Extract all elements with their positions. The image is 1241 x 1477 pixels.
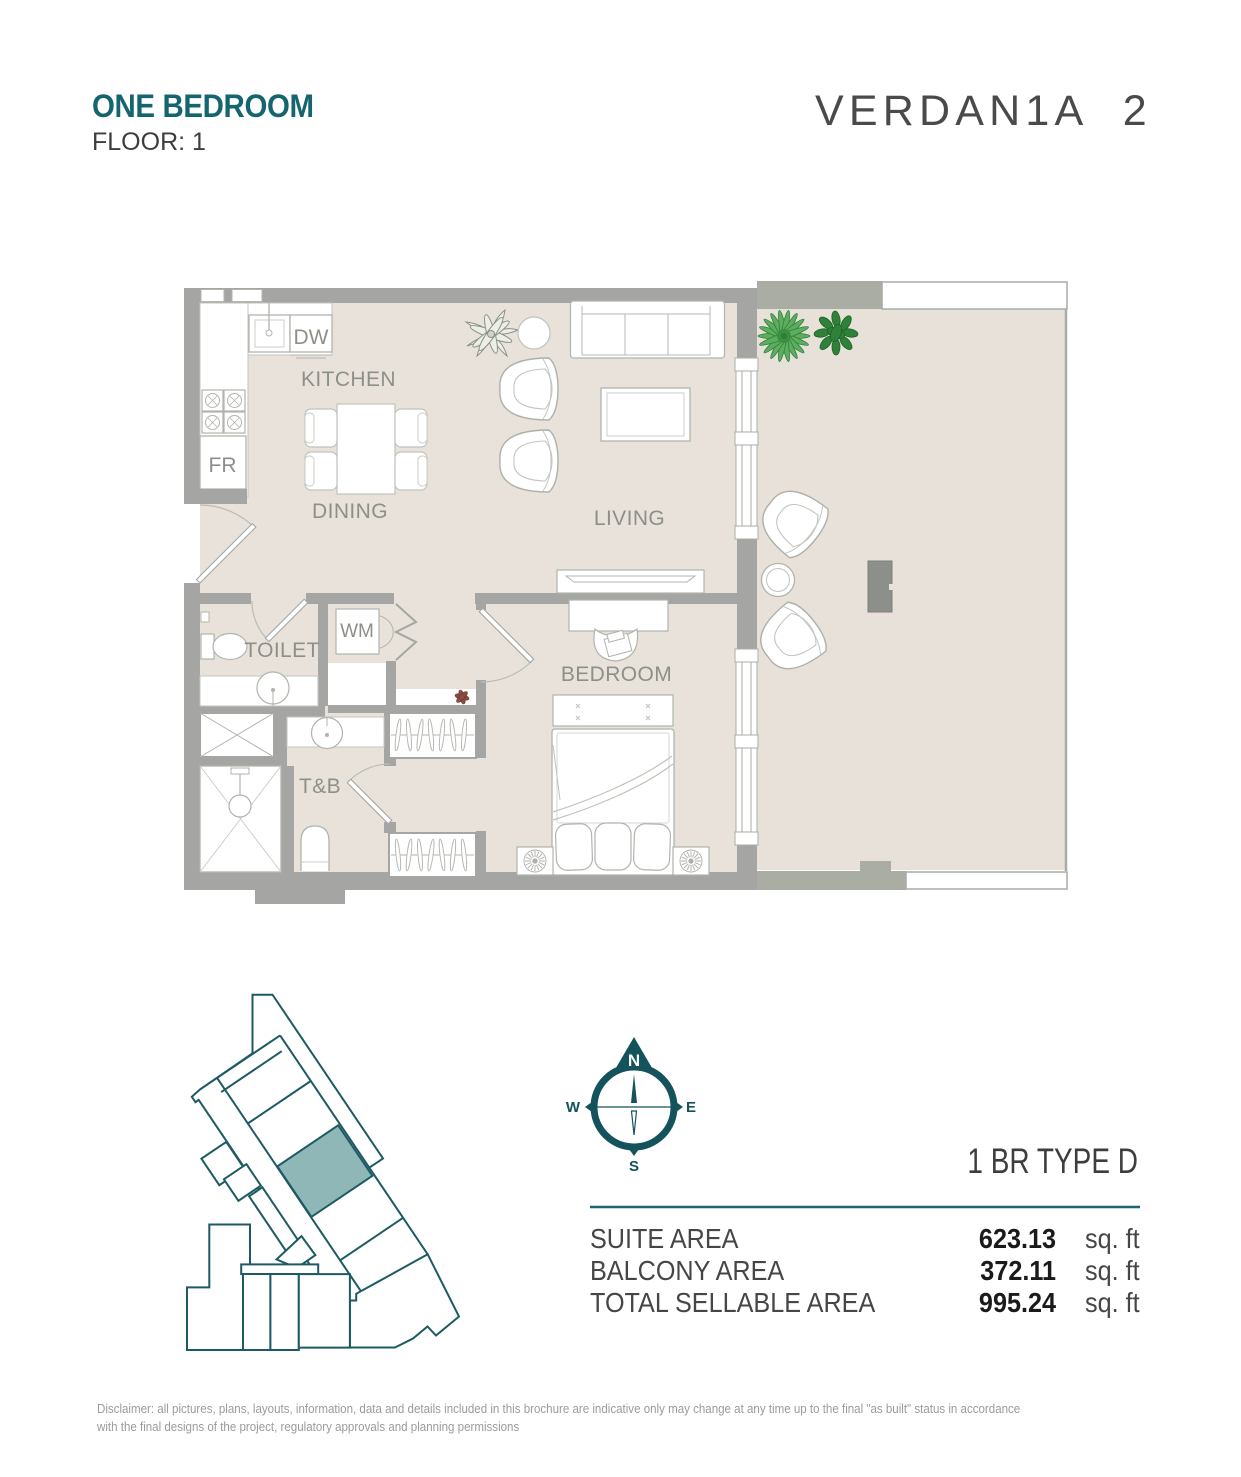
svg-text:DINING: DINING bbox=[312, 500, 388, 523]
svg-text:BEDROOM: BEDROOM bbox=[561, 663, 672, 686]
svg-text:FR: FR bbox=[209, 454, 237, 477]
svg-text:N: N bbox=[628, 1051, 640, 1070]
svg-text:KITCHEN: KITCHEN bbox=[301, 368, 396, 391]
svg-text:WM: WM bbox=[340, 621, 374, 642]
svg-text:T&B: T&B bbox=[299, 775, 341, 798]
svg-text:W: W bbox=[566, 1099, 581, 1116]
svg-text:E: E bbox=[686, 1099, 696, 1116]
svg-text:TOILET: TOILET bbox=[244, 639, 320, 662]
svg-text:S: S bbox=[629, 1158, 639, 1175]
svg-text:LIVING: LIVING bbox=[594, 507, 665, 530]
svg-text:DW: DW bbox=[294, 326, 329, 349]
